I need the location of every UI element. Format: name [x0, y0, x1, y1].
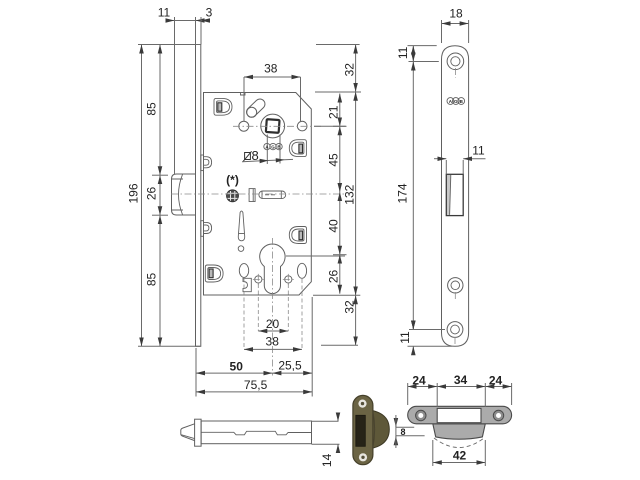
svg-text:75,5: 75,5 — [244, 378, 268, 392]
svg-text:25,5: 25,5 — [278, 358, 302, 372]
svg-text:34: 34 — [454, 373, 468, 387]
svg-text:24: 24 — [412, 374, 426, 388]
svg-text:32: 32 — [342, 63, 356, 77]
svg-text:3: 3 — [206, 6, 213, 20]
svg-text:85: 85 — [145, 102, 159, 116]
svg-text:50: 50 — [230, 359, 244, 373]
svg-text:85: 85 — [145, 273, 159, 287]
svg-text:38: 38 — [264, 62, 278, 76]
svg-text:18: 18 — [449, 7, 463, 21]
svg-text:11: 11 — [396, 46, 410, 59]
svg-text:(*): (*) — [226, 173, 239, 187]
svg-text:11: 11 — [398, 331, 412, 344]
svg-text:14: 14 — [320, 453, 334, 467]
svg-text:20: 20 — [266, 317, 280, 331]
svg-text:11: 11 — [472, 144, 485, 158]
svg-text:42: 42 — [453, 449, 467, 463]
svg-text:21: 21 — [327, 105, 341, 119]
svg-text:32: 32 — [342, 300, 356, 314]
svg-text:174: 174 — [396, 183, 410, 203]
svg-text:26: 26 — [145, 187, 159, 201]
svg-text:132: 132 — [342, 184, 356, 204]
svg-text:45: 45 — [327, 153, 341, 167]
svg-text:24: 24 — [489, 374, 503, 388]
svg-text:26: 26 — [327, 270, 341, 284]
svg-text:G: G — [454, 99, 458, 104]
svg-text:G: G — [271, 144, 275, 149]
svg-text:40: 40 — [327, 219, 341, 233]
svg-text:11: 11 — [158, 6, 171, 20]
svg-text:196: 196 — [127, 183, 141, 203]
svg-text:38: 38 — [266, 335, 280, 349]
